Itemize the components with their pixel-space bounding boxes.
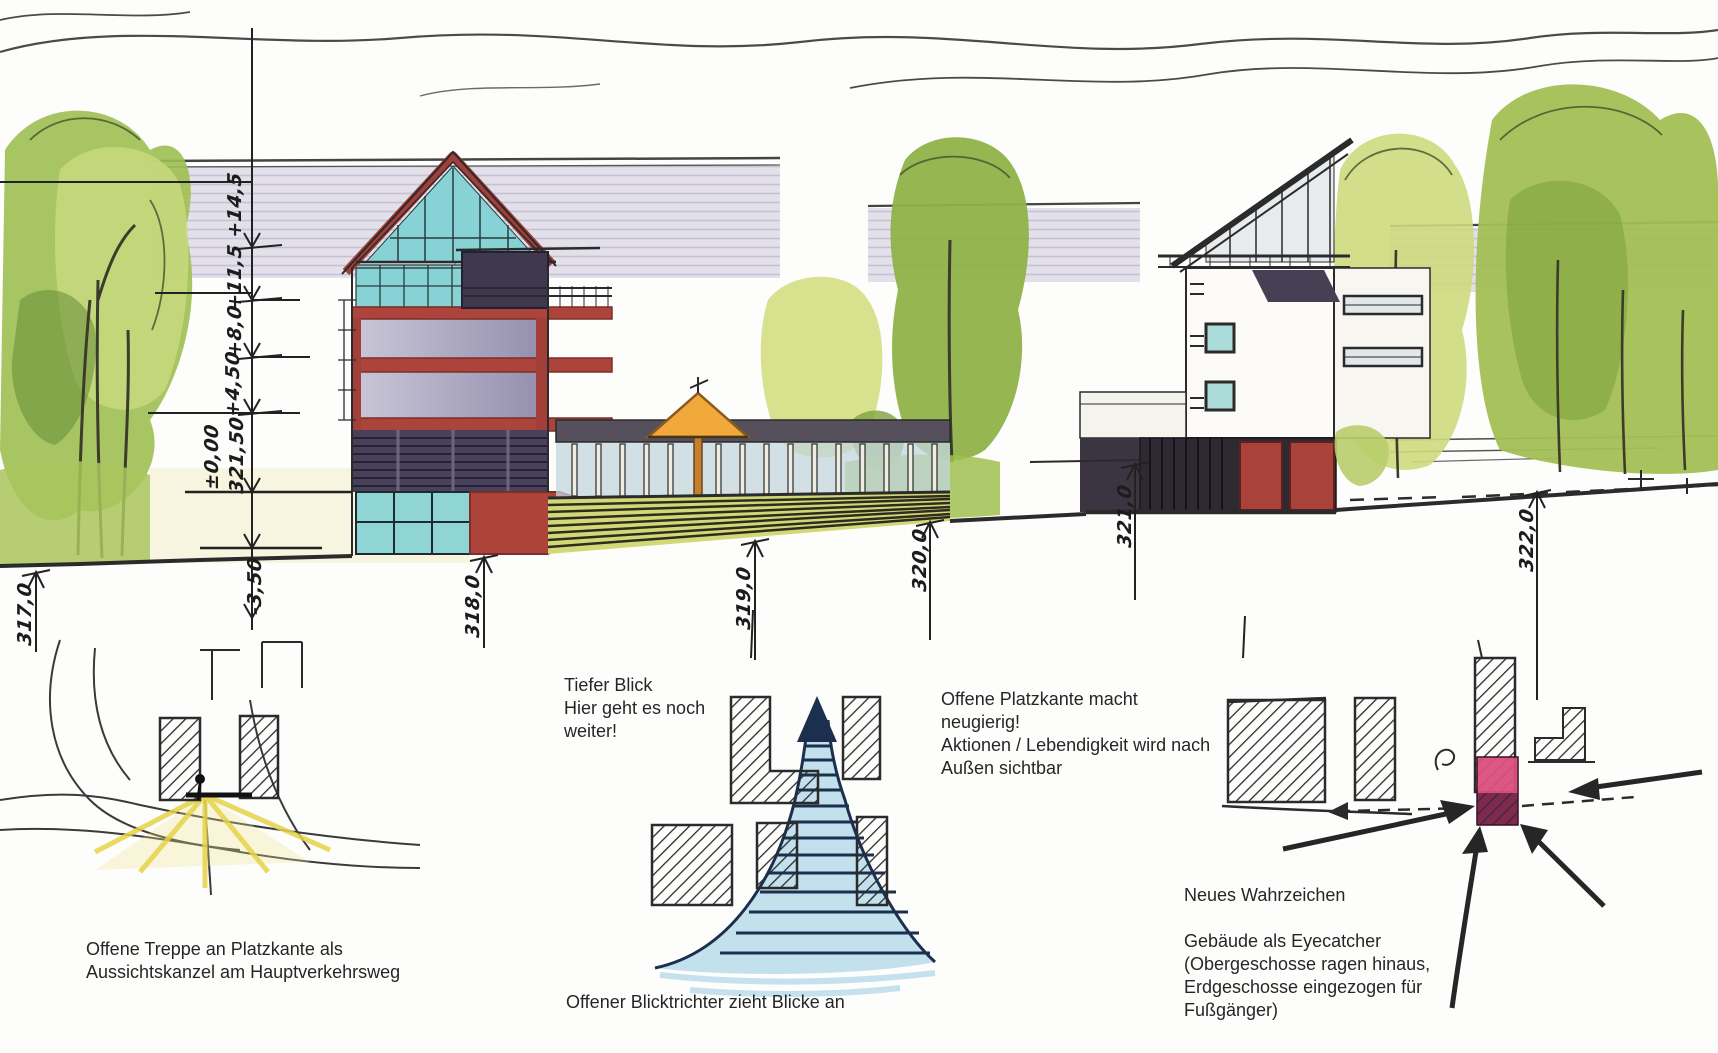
annotation-view-funnel: Offener Blicktrichter zieht Blicke an bbox=[566, 991, 946, 1014]
steps bbox=[548, 492, 950, 554]
annotation-open-stair: Offene Treppe an Platzkante als Aussicht… bbox=[86, 938, 416, 984]
height-label-zero: ±0,00 bbox=[200, 407, 224, 506]
annotation-landmark-title: Neues Wahrzeichen bbox=[1184, 884, 1484, 907]
annotation-deep-view: Tiefer Blick Hier geht es noch weiter! bbox=[564, 674, 794, 743]
ground-label-321: 321,0 bbox=[1113, 466, 1137, 565]
hills bbox=[0, 12, 1718, 96]
ground-label-322: 322,0 bbox=[1515, 490, 1539, 589]
architectural-sketch-page: Offene Treppe an Platzkante als Aussicht… bbox=[0, 0, 1718, 1053]
height-label-321-50: 321,50 bbox=[225, 405, 249, 504]
ground-label-318: 318,0 bbox=[461, 556, 485, 655]
sketch-open-stair bbox=[0, 640, 420, 895]
ground-label-320: 320,0 bbox=[908, 510, 932, 609]
annotation-platzkante: Offene Platzkante macht neugierig! Aktio… bbox=[941, 688, 1251, 780]
height-label-minus-3-50: -3,50 bbox=[243, 536, 267, 635]
ground-label-317: 317,0 bbox=[13, 564, 37, 663]
ground-label-319: 319,0 bbox=[732, 548, 756, 647]
annotation-eyecatcher: Gebäude als Eyecatcher (Obergeschosse ra… bbox=[1184, 930, 1494, 1022]
